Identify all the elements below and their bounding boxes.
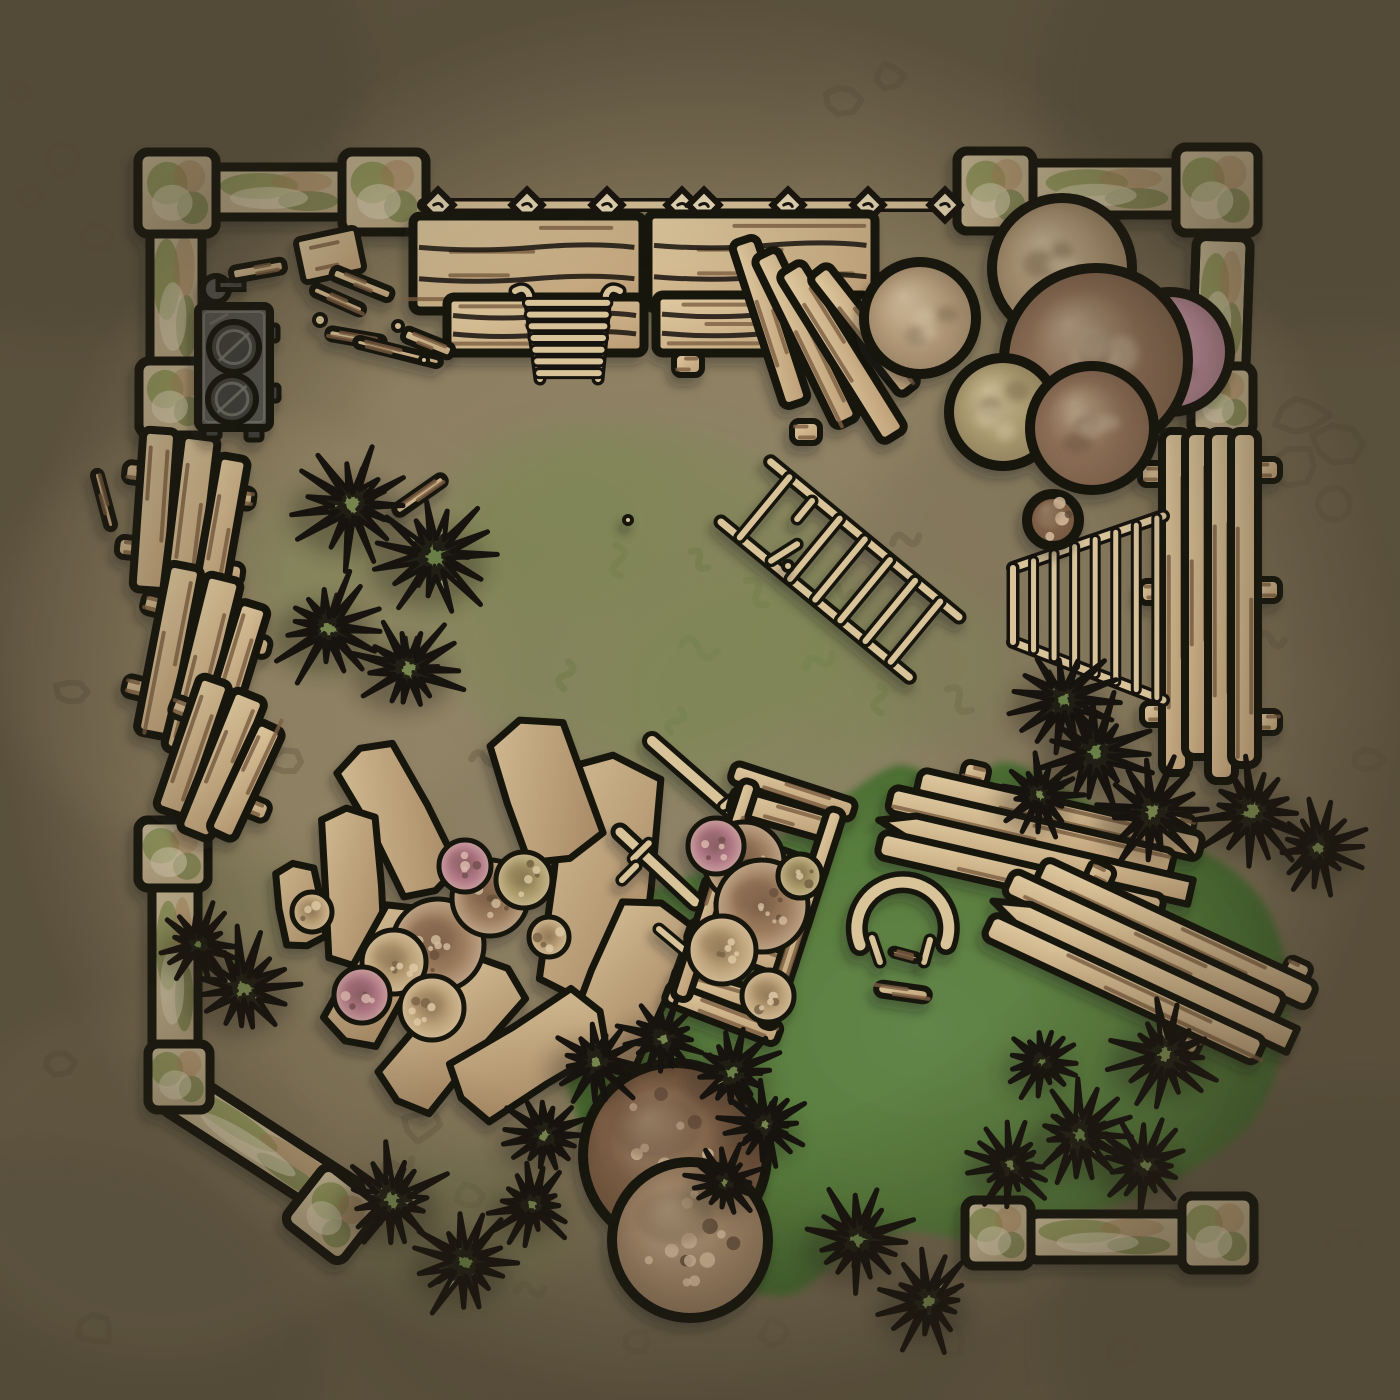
stone-wall-post [1182,1196,1254,1270]
mushroom-cap [529,917,569,957]
mushroom-cap [439,840,491,892]
vertical-plank [1231,431,1258,765]
platform-support-nub [792,421,820,443]
tree-canopy [1030,366,1154,490]
wood-chip [393,321,403,331]
wood-chip [314,314,326,326]
stone-wall-segment [203,167,353,217]
map-svg [0,0,1400,1400]
stone-wall-post [148,1044,210,1110]
mushroom-cap [334,967,390,1023]
platform-support-nub [674,353,702,375]
mushroom-cap [778,854,822,898]
mushroom-cap [742,970,794,1022]
battle-map [0,0,1400,1400]
wood-chip [420,356,428,364]
mushroom-cap [496,852,552,908]
mushroom-cap [292,892,332,932]
stone-wall-post [138,152,216,234]
wood-chip [783,561,793,571]
stone-wall-segment [1028,1214,1186,1260]
stone-wall-post [965,1200,1031,1266]
mushroom-cap [400,976,464,1040]
wood-chip [624,516,632,524]
boulder [1027,494,1079,546]
mushroom-cap [688,916,756,984]
tree-canopy [864,262,976,374]
stone-wall-post [1176,147,1258,233]
